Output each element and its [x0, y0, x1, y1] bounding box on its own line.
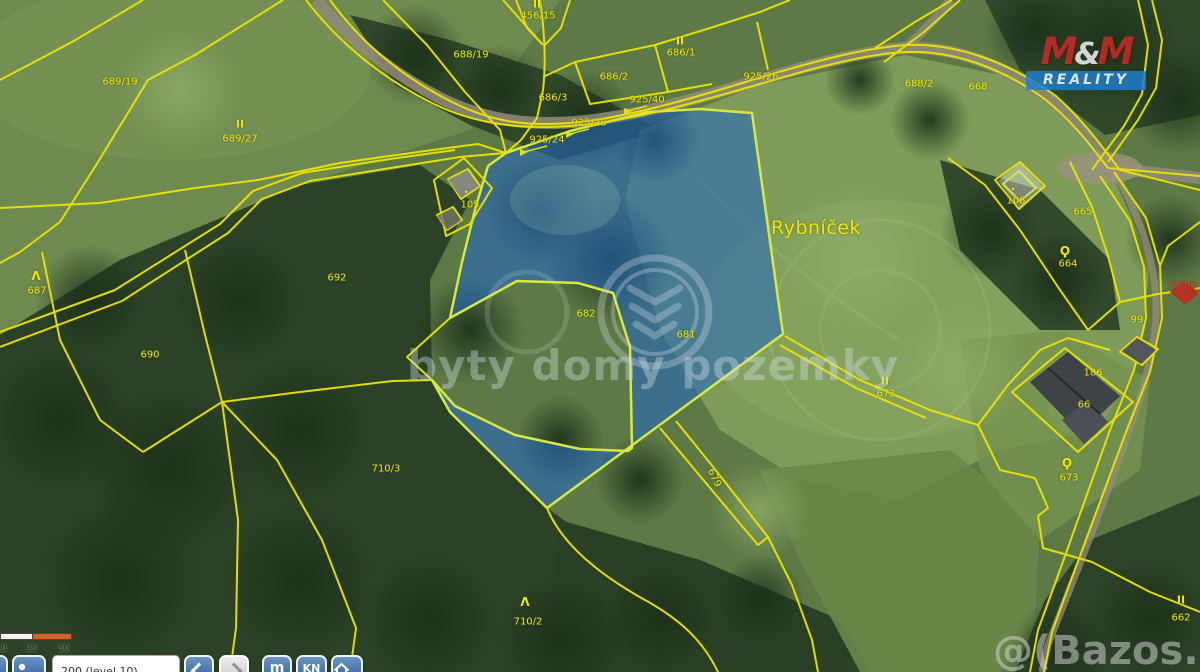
measure-label: m: [270, 660, 285, 672]
person-icon: [14, 662, 30, 672]
logo-title: M&M: [1026, 34, 1146, 73]
cadastre-button[interactable]: KN: [296, 655, 327, 672]
home-button[interactable]: [331, 655, 363, 672]
forward-button[interactable]: [219, 655, 249, 672]
house-icon: [333, 662, 350, 672]
cadastre-label: KN: [303, 662, 321, 672]
aerial-map-svg: [0, 0, 1200, 672]
measure-button[interactable]: m: [262, 655, 292, 672]
mm-reality-logo: M&M REALITY: [1026, 34, 1146, 90]
map-level-input[interactable]: [52, 655, 180, 672]
chevron-right-icon: [226, 663, 243, 672]
back-button[interactable]: [184, 655, 214, 672]
ampersand: &: [1074, 37, 1097, 72]
locate-button[interactable]: [12, 655, 46, 672]
chevron-left-icon: [191, 663, 208, 672]
cadastral-map[interactable]: 689/19II689/27II456/15688/19686/3686/2II…: [0, 0, 1200, 672]
edge-button[interactable]: [0, 655, 8, 672]
logo-subtitle: REALITY: [1026, 71, 1146, 90]
pond-highlight: [510, 165, 620, 235]
